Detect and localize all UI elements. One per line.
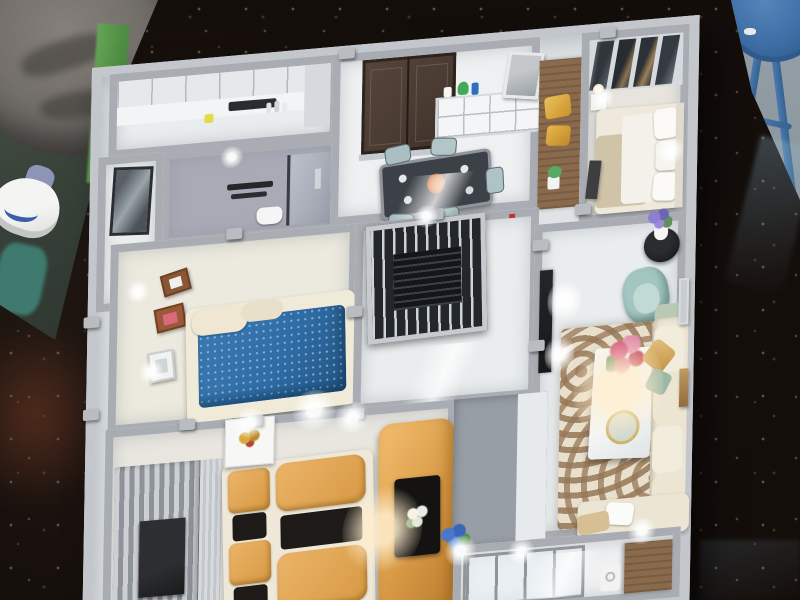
gold-wall-art <box>679 368 689 407</box>
gold-decor <box>545 126 571 146</box>
striped-media-wall <box>112 460 201 600</box>
wardrobe-glass-panel <box>633 37 658 87</box>
gold-seat-cushion <box>275 453 365 512</box>
wall-tab <box>83 409 99 421</box>
wall-tab <box>600 26 616 38</box>
silver-floor-band <box>198 458 223 600</box>
living-room <box>529 212 686 541</box>
wall-tab <box>179 418 195 430</box>
wardrobe-glass-panel <box>655 35 680 85</box>
wall-tab <box>247 414 263 426</box>
wall-tab <box>226 227 242 239</box>
shower-fixture <box>315 168 321 189</box>
black-cushion <box>234 584 268 600</box>
photo <box>169 276 183 289</box>
photo <box>163 311 178 325</box>
gold-ornament <box>236 428 262 450</box>
hall-wall-block <box>452 391 548 550</box>
wall-tab <box>428 208 444 220</box>
glass-door <box>109 166 153 236</box>
white-flower-bunch <box>402 500 432 533</box>
toilet <box>256 206 282 225</box>
apartment-model <box>82 15 700 600</box>
bottle <box>282 102 287 111</box>
towel-rack <box>227 181 273 191</box>
gold-decor <box>544 93 572 120</box>
gold-sofa <box>222 448 376 600</box>
wardrobe-glass-panel <box>589 40 614 90</box>
door-split <box>406 56 410 151</box>
wall-tab <box>532 239 548 251</box>
lounge <box>102 400 456 600</box>
towel-rack <box>231 191 267 199</box>
wardrobe-glass-panel <box>611 38 636 88</box>
sneaker-swoosh <box>3 198 40 225</box>
lattice-screen <box>366 212 488 345</box>
black-tray-table <box>394 475 440 558</box>
teal-fabric <box>0 240 51 318</box>
plant <box>458 81 469 95</box>
gold-chaise <box>378 417 454 600</box>
plant <box>548 165 562 178</box>
gold-rim-plate <box>605 409 641 444</box>
headboard <box>674 103 684 208</box>
blue-vase <box>471 82 478 95</box>
yellow-utensil <box>204 114 213 124</box>
wall-tab <box>339 47 355 59</box>
indicator-led <box>509 214 515 219</box>
black-cushion <box>232 512 266 542</box>
shelf-frame <box>160 267 192 297</box>
lattice-louvers <box>393 246 462 310</box>
photo <box>155 358 168 374</box>
blue-bed <box>185 289 356 424</box>
gold-seat-cushion <box>277 543 368 600</box>
study-hall <box>353 208 540 413</box>
master-bedroom <box>579 24 690 224</box>
bottle <box>266 102 271 112</box>
shelf-frame <box>147 349 175 384</box>
white-quilt <box>621 113 656 204</box>
second-bedroom <box>107 223 357 434</box>
dining-chair <box>430 138 458 156</box>
black-seat-cushion <box>280 506 362 550</box>
balcony-wood-cabinet <box>624 539 673 593</box>
white-vase <box>444 87 452 98</box>
wall-tab <box>575 203 591 215</box>
lounge-tv <box>138 518 185 598</box>
photo-apartment-scale-model <box>0 0 800 600</box>
tall-cabinet <box>304 63 331 128</box>
wall-tab <box>529 340 545 352</box>
hall-marble-strip <box>515 391 548 544</box>
mirrored-wardrobe <box>589 32 684 92</box>
washer <box>600 564 620 592</box>
shelf-frame <box>154 303 187 334</box>
master-bed <box>595 103 682 215</box>
wall-tv <box>538 270 553 374</box>
wall-tab <box>348 408 364 420</box>
washer-door <box>605 571 615 582</box>
table-reflection <box>700 540 800 600</box>
bottle <box>274 101 279 112</box>
sofa-cushion <box>652 425 683 474</box>
white-sneaker <box>0 169 67 245</box>
wall-tab <box>346 305 362 317</box>
gold-cushion <box>228 467 271 514</box>
entry-wood-cabinet <box>537 57 581 209</box>
floor-debris <box>744 28 756 35</box>
purple-flowers <box>646 207 672 231</box>
dining-room <box>330 37 540 226</box>
gold-cushion <box>229 539 272 586</box>
shower-glass <box>290 151 331 225</box>
wall-tab <box>83 316 99 328</box>
wall-panel-frame <box>678 278 689 325</box>
nightstand <box>591 93 607 110</box>
door-panel <box>369 67 402 146</box>
